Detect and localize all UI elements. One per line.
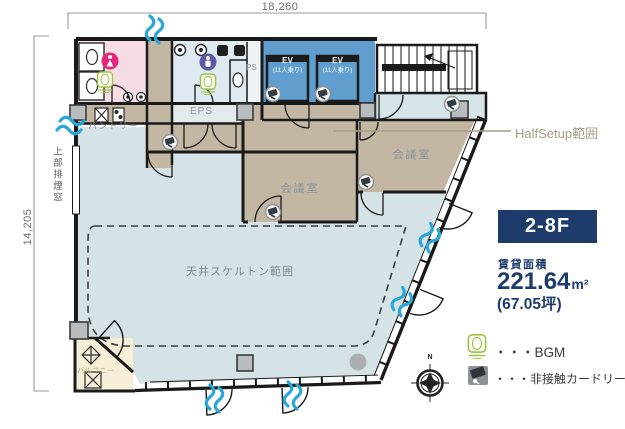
meeting-room-center-label: 会議室 xyxy=(269,180,331,196)
halfsetup-label: HalfSetup範囲 xyxy=(515,123,598,142)
skeleton-area-label: 天井スケルトン範囲 xyxy=(170,263,310,279)
women-icon xyxy=(102,53,119,70)
compass-icon xyxy=(411,364,449,402)
floor-badge-text: 2-8F xyxy=(525,215,570,238)
legend-card-reader-label: ・・・非接触カードリーダー xyxy=(494,370,625,387)
elevator-2-label: EV xyxy=(317,56,358,65)
elevator-2-capacity: (11人乗り) xyxy=(311,65,364,74)
dimension-top-value: 18,260 xyxy=(180,1,380,13)
balcony-label: バルコニー xyxy=(77,365,114,376)
floorplan-page: 18,260 14,205 上部排煙窓 パントリー EPS PS EV (11人… xyxy=(0,0,625,429)
legend-bgm-label: ・・・BGM xyxy=(494,341,565,361)
rent-area-unit: m² xyxy=(571,276,588,292)
smoke-window-opening xyxy=(73,146,80,214)
pantry-label: パントリー xyxy=(88,119,138,132)
floor-badge: 2-8F xyxy=(498,210,597,243)
legend-bgm-speaker-icon xyxy=(468,335,485,359)
dimension-left-value: 14,205 xyxy=(22,197,34,257)
compass-north-label: N xyxy=(425,354,435,361)
smoke-window-label: 上部排煙窓 xyxy=(49,146,63,204)
men-icon xyxy=(200,54,217,71)
eps-label: EPS xyxy=(190,106,213,117)
elevator-1-label: EV xyxy=(267,56,308,65)
legend-card-reader-icon xyxy=(468,366,488,385)
meeting-room-right-label: 会議室 xyxy=(381,146,443,162)
ps-label: PS xyxy=(246,63,257,72)
elevator-1-capacity: (11人乗り) xyxy=(261,65,314,74)
rent-area-tsubo: (67.05坪) xyxy=(497,292,562,314)
